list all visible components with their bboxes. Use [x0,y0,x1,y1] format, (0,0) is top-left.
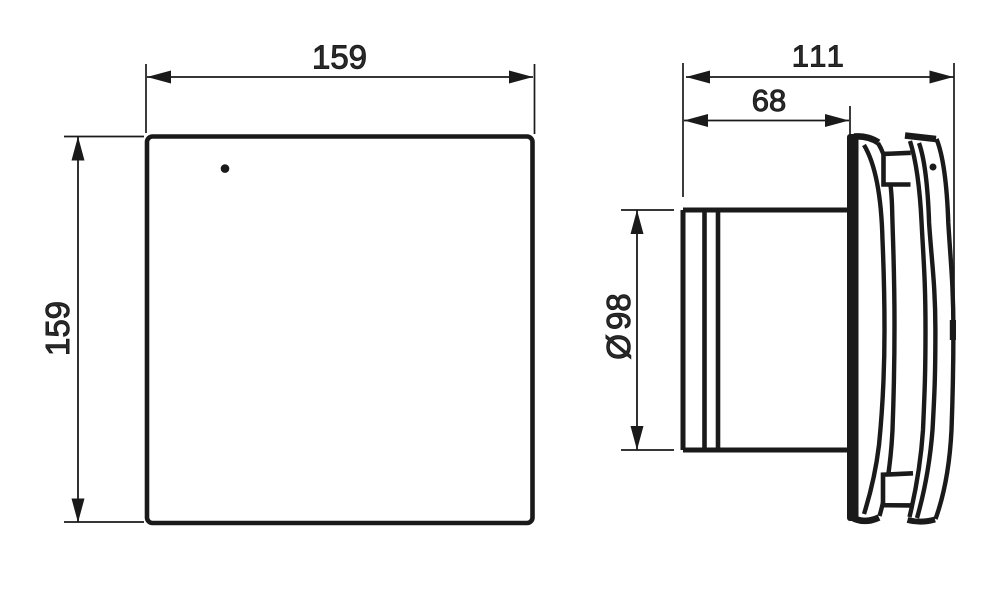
svg-text:68: 68 [752,83,786,118]
svg-text:159: 159 [39,301,76,356]
svg-text:111: 111 [792,39,847,74]
svg-text:Ø98: Ø98 [600,293,637,359]
svg-text:159: 159 [312,39,367,76]
